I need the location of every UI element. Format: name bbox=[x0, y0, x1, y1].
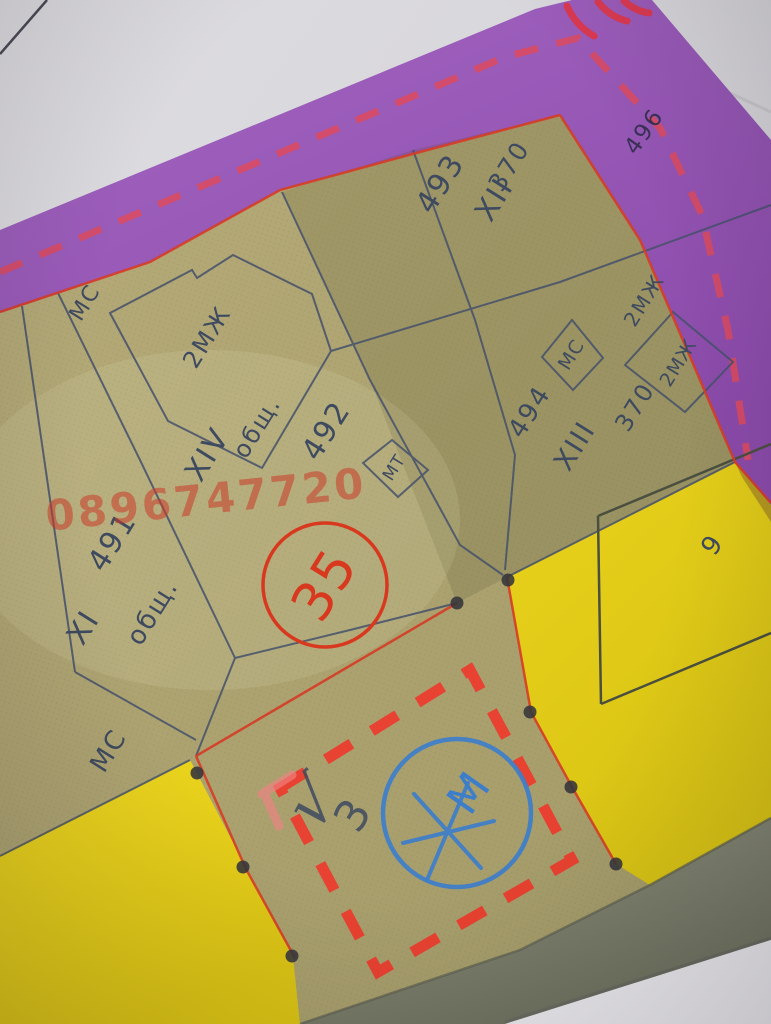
survey-dot bbox=[237, 861, 250, 874]
survey-dot bbox=[286, 950, 299, 963]
survey-dot bbox=[191, 767, 204, 780]
cadastral-map-photo: МС 2МЖ 493 XII 370 МС 2МЖ 2МЖ 494 XIII 3… bbox=[0, 0, 771, 1024]
survey-dot bbox=[524, 706, 537, 719]
survey-dot bbox=[610, 858, 623, 871]
survey-dot bbox=[502, 574, 515, 587]
survey-dot bbox=[451, 597, 464, 610]
survey-dot bbox=[565, 781, 578, 794]
